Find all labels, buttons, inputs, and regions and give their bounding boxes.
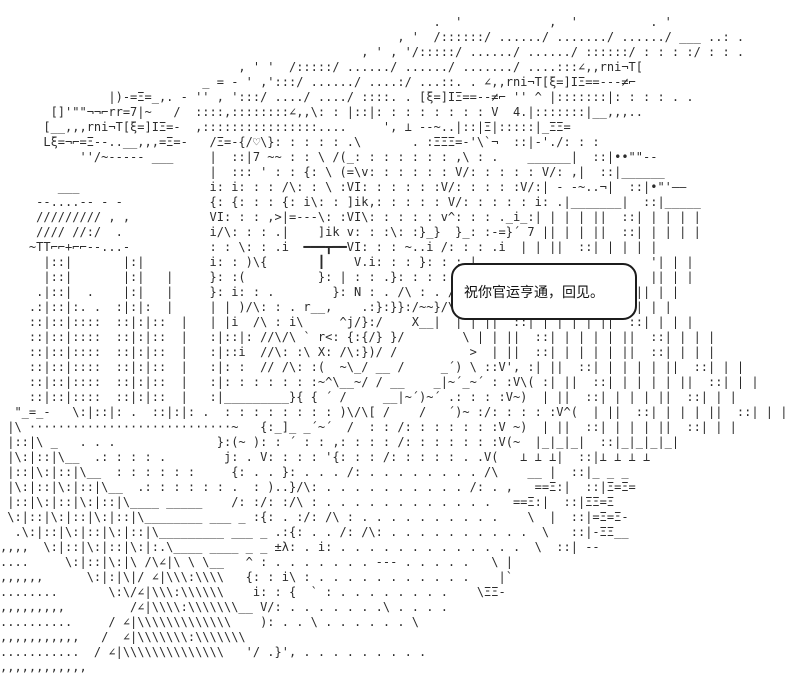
speech-bubble-text: 祝你官运亨通，回见。 — [464, 282, 604, 302]
aa-scene: . ' , ' . ' , ' /::::::/ ....../ .......… — [0, 0, 786, 694]
speech-bubble: 祝你官运亨通，回见。 — [451, 263, 637, 320]
ascii-art: . ' , ' . ' , ' /::::::/ ....../ .......… — [0, 0, 786, 675]
